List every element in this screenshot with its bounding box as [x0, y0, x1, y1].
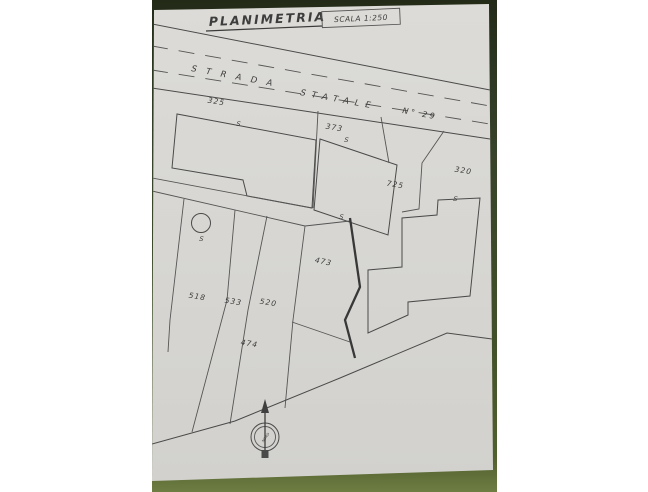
north-arrow-base	[262, 450, 269, 458]
photographed-plan-document: PLANIMETRIA SCALA 1:250 STRADA STATALE N…	[0, 0, 648, 492]
plan-drawing: PLANIMETRIA SCALA 1:250 STRADA STATALE N…	[0, 0, 648, 492]
